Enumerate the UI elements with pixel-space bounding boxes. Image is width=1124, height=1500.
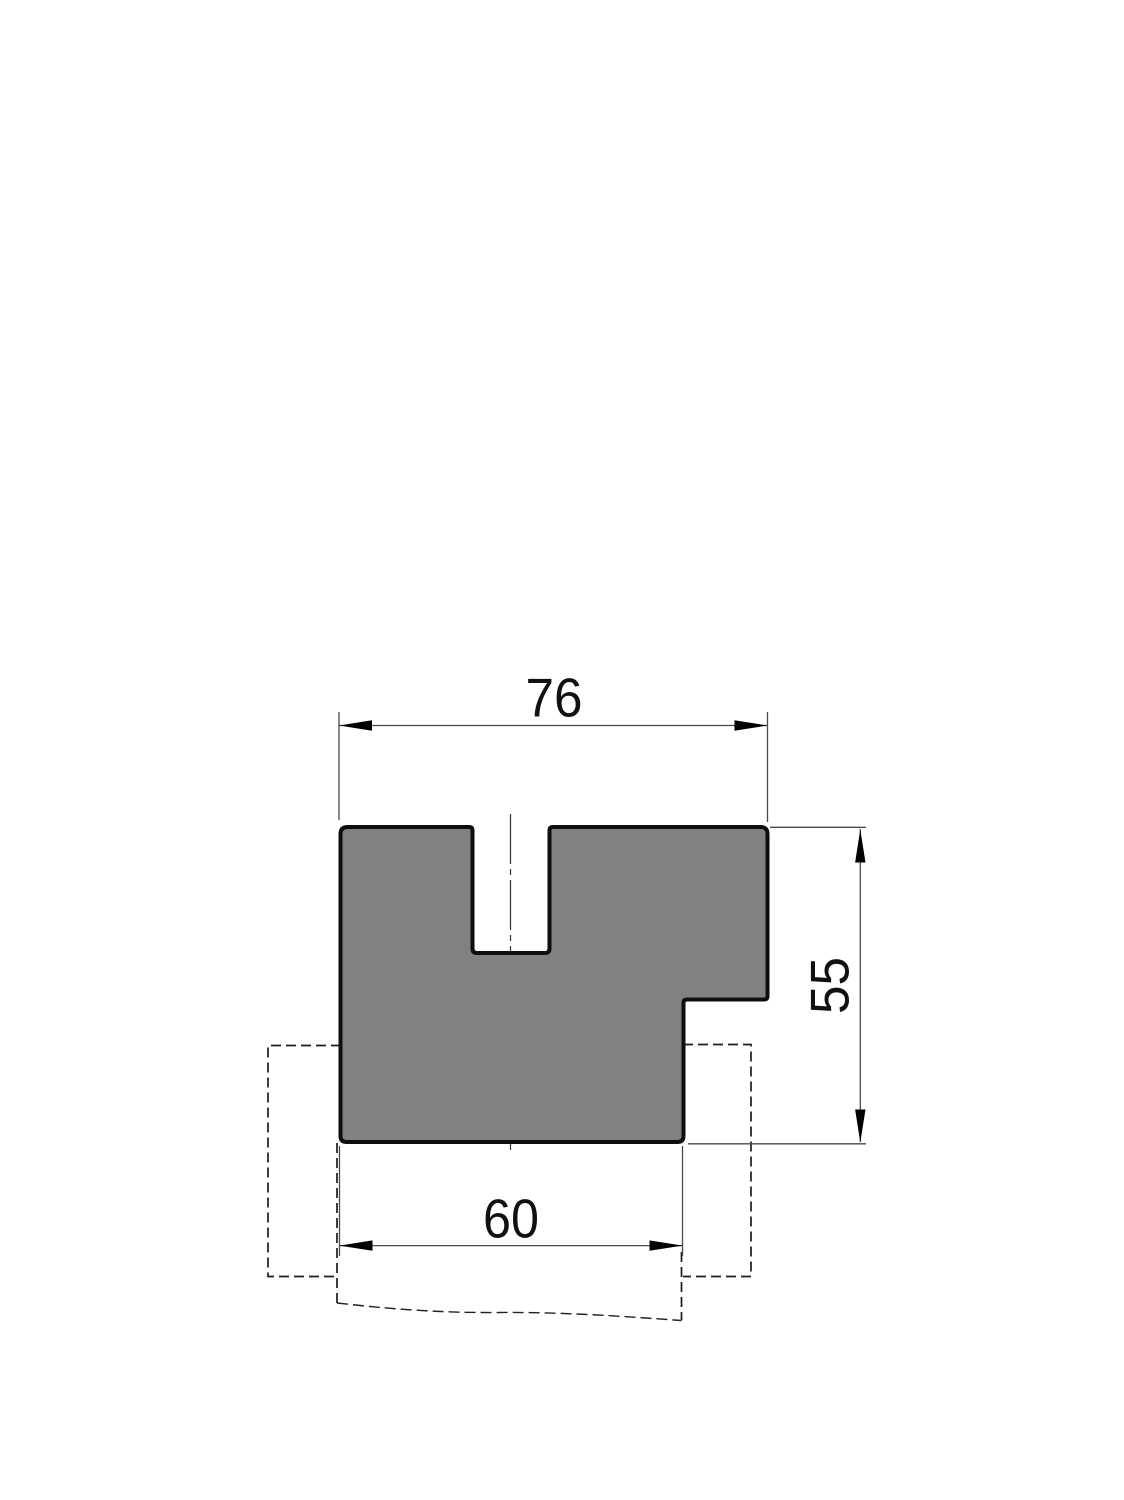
svg-text:76: 76	[526, 667, 583, 729]
svg-text:55: 55	[799, 957, 861, 1014]
svg-text:60: 60	[483, 1188, 539, 1250]
